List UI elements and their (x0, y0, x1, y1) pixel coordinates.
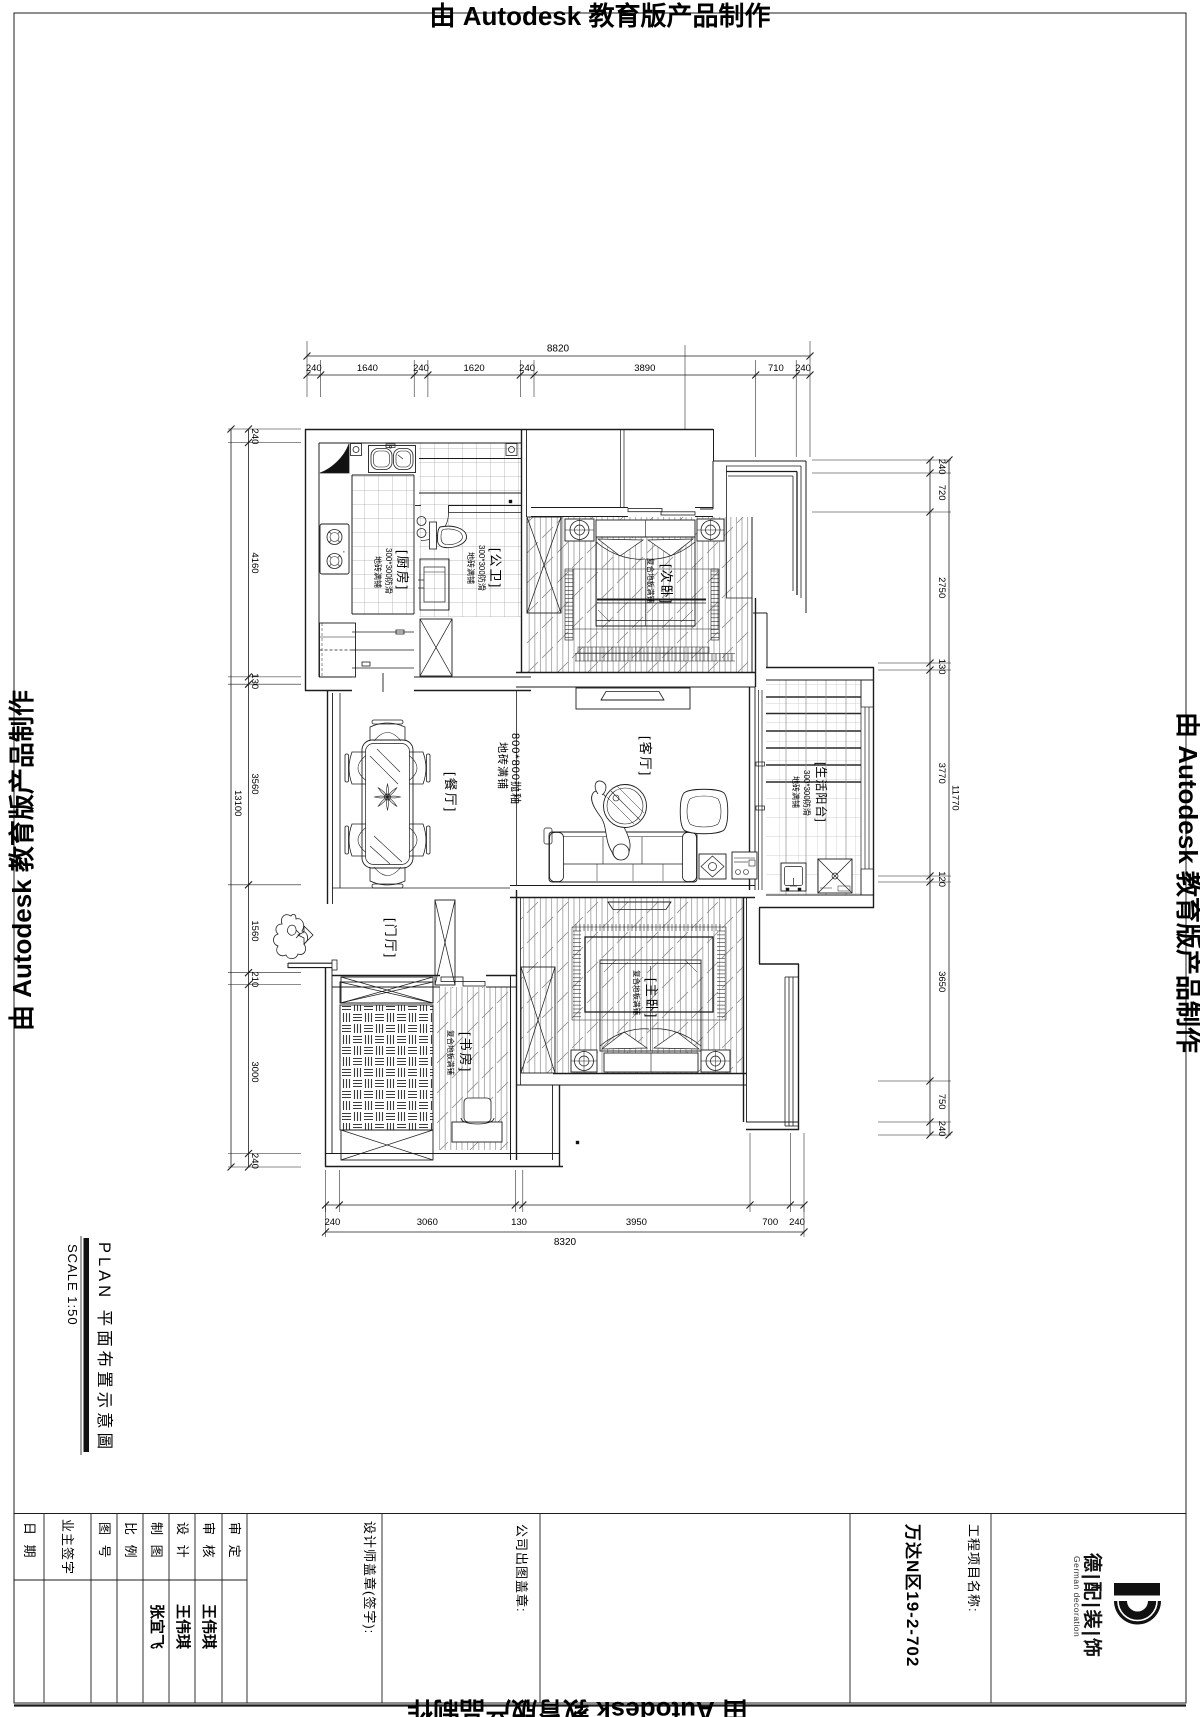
svg-text:万达N区19-2-702: 万达N区19-2-702 (903, 1523, 923, 1667)
svg-text:3000: 3000 (249, 1061, 260, 1082)
svg-text:300*300防滑: 300*300防滑 (802, 770, 812, 816)
svg-text:300*300防滑: 300*300防滑 (477, 545, 487, 591)
svg-text:3890: 3890 (634, 363, 655, 374)
svg-text:710: 710 (768, 363, 784, 374)
svg-text:700: 700 (762, 1217, 778, 1228)
svg-text:3060: 3060 (417, 1217, 438, 1228)
svg-text:PLAN 平面布置示意圖: PLAN 平面布置示意圖 (95, 1242, 114, 1453)
svg-text:复合地板满铺: 复合地板满铺 (646, 558, 656, 603)
svg-text:[厨房]: [厨房] (395, 550, 410, 591)
svg-text:由 Autodesk 教育版产品制作: 由 Autodesk 教育版产品制作 (407, 1696, 748, 1717)
svg-text:210: 210 (249, 971, 260, 987)
svg-text:300*300防滑: 300*300防滑 (384, 548, 394, 594)
svg-text:240: 240 (249, 429, 260, 445)
svg-text:制 图: 制 图 (149, 1522, 164, 1561)
svg-text:[餐厅]: [餐厅] (443, 772, 458, 813)
svg-text:地砖满铺: 地砖满铺 (373, 556, 383, 588)
svg-text:[门厅]: [门厅] (383, 918, 398, 959)
svg-text:240: 240 (789, 1217, 805, 1228)
svg-text:王伟琪: 王伟琪 (200, 1604, 218, 1649)
svg-text:复合地板满铺: 复合地板满铺 (632, 970, 642, 1015)
svg-text:4160: 4160 (249, 552, 260, 573)
svg-text:业主签字: 业主签字 (60, 1519, 75, 1575)
svg-text:240: 240 (936, 459, 947, 475)
svg-text:地砖满铺: 地砖满铺 (791, 776, 801, 808)
svg-text:800*800抛釉: 800*800抛釉 (509, 733, 523, 805)
svg-text:8820: 8820 (547, 344, 570, 355)
svg-text:13100: 13100 (232, 790, 243, 816)
svg-text:[书房]: [书房] (458, 1032, 473, 1073)
svg-text:130: 130 (511, 1217, 527, 1228)
svg-text:130: 130 (936, 659, 947, 675)
svg-text:240: 240 (324, 1217, 340, 1228)
svg-text:张宜飞: 张宜飞 (148, 1604, 166, 1649)
svg-text:图 号: 图 号 (97, 1522, 112, 1561)
svg-text:1560: 1560 (249, 920, 260, 941)
svg-text:1620: 1620 (464, 363, 485, 374)
svg-text:240: 240 (519, 363, 535, 374)
svg-text:240: 240 (413, 363, 429, 374)
svg-text:设计师盖章(签字):: 设计师盖章(签字): (362, 1521, 377, 1634)
svg-text:SCALE 1:50: SCALE 1:50 (65, 1244, 80, 1326)
svg-text:公司出图盖章:: 公司出图盖章: (514, 1524, 529, 1613)
svg-text:3770: 3770 (936, 763, 947, 784)
svg-text:2750: 2750 (936, 577, 947, 598)
svg-text:8320: 8320 (554, 1237, 577, 1248)
svg-text:审 核: 审 核 (201, 1522, 216, 1561)
svg-text:120: 120 (936, 871, 947, 887)
svg-text:工程项目名称:: 工程项目名称: (966, 1524, 981, 1613)
svg-text:[次卧]: [次卧] (659, 564, 674, 605)
svg-text:3650: 3650 (936, 971, 947, 992)
svg-text:王伟琪: 王伟琪 (174, 1604, 192, 1649)
svg-text:240: 240 (936, 1121, 947, 1137)
svg-text:750: 750 (936, 1094, 947, 1110)
svg-text:由 Autodesk 教育版产品制作: 由 Autodesk 教育版产品制作 (1173, 712, 1200, 1053)
svg-text:[公卫]: [公卫] (488, 548, 503, 589)
svg-text:3950: 3950 (626, 1217, 647, 1228)
svg-text:German decoration: German decoration (1072, 1556, 1082, 1637)
svg-text:比 例: 比 例 (123, 1522, 138, 1561)
svg-text:[主卧]: [主卧] (644, 978, 659, 1019)
svg-text:设 计: 设 计 (175, 1522, 190, 1561)
svg-text:地砖满铺: 地砖满铺 (496, 742, 510, 790)
svg-text:复合地板满铺: 复合地板满铺 (446, 1030, 456, 1075)
svg-text:240: 240 (306, 363, 322, 374)
svg-text:720: 720 (936, 485, 947, 501)
svg-text:由 Autodesk 教育版产品制作: 由 Autodesk 教育版产品制作 (7, 690, 37, 1031)
svg-text:由 Autodesk 教育版产品制作: 由 Autodesk 教育版产品制作 (430, 1, 771, 31)
svg-text:[客厅]: [客厅] (638, 736, 653, 777)
svg-text:240: 240 (249, 1153, 260, 1169)
svg-text:1640: 1640 (357, 363, 378, 374)
svg-text:日 期: 日 期 (22, 1522, 37, 1561)
svg-text:130: 130 (249, 673, 260, 689)
svg-text:3560: 3560 (249, 773, 260, 794)
svg-text:11770: 11770 (950, 785, 961, 811)
svg-text:德|配|装|饰: 德|配|装|饰 (1081, 1553, 1104, 1659)
svg-text:240: 240 (795, 363, 811, 374)
svg-text:审 定: 审 定 (227, 1522, 242, 1561)
svg-text:[生活阳台]: [生活阳台] (814, 762, 829, 823)
svg-text:地砖满铺: 地砖满铺 (466, 552, 476, 584)
